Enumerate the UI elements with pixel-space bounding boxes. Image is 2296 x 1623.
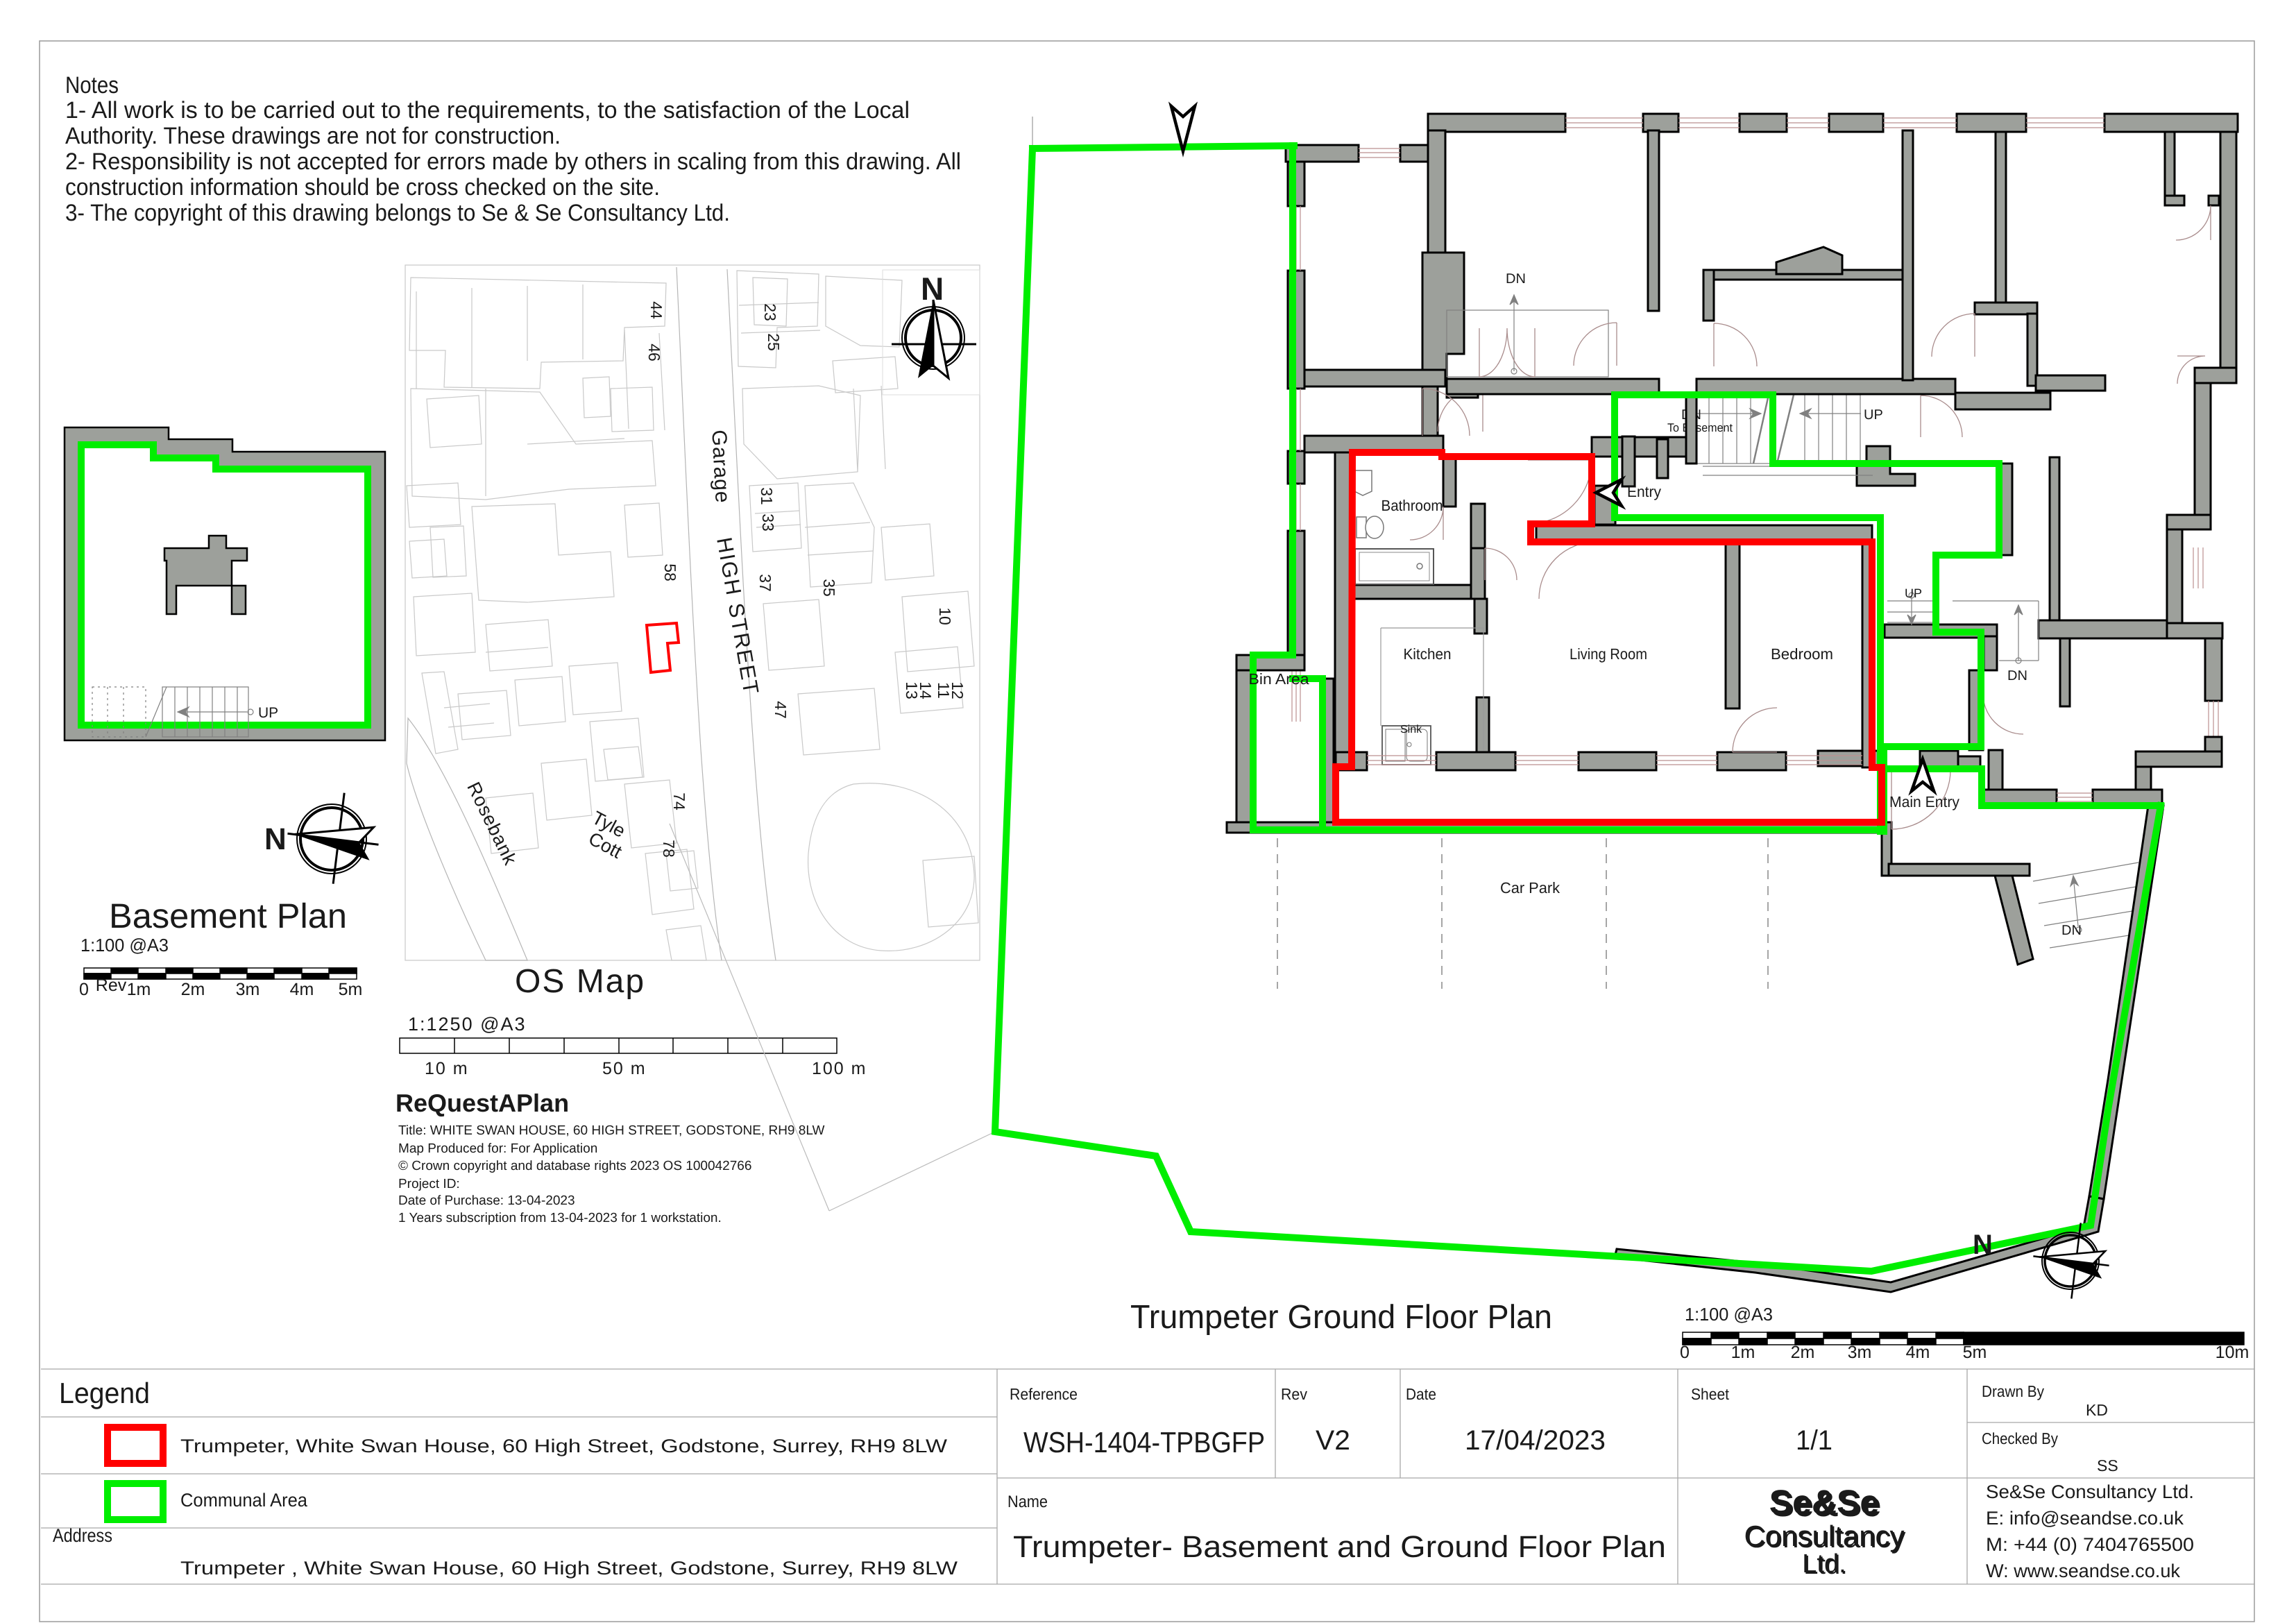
svg-text:1:100 @A3: 1:100 @A3: [80, 935, 169, 955]
svg-text:1 Years subscription from 13-0: 1 Years subscription from 13-04-2023 for…: [398, 1211, 722, 1225]
svg-text:0: 0: [1680, 1343, 1690, 1362]
svg-text:Ltd.: Ltd.: [1802, 1549, 1846, 1579]
svg-text:construction information shoul: construction information should be cross…: [65, 174, 660, 201]
svg-text:Trumpeter , White Swan House,: Trumpeter , White Swan House, 60 High St…: [180, 1558, 958, 1579]
svg-text:2- Responsibility is not accep: 2- Responsibility is not accepted for er…: [65, 148, 961, 175]
svg-text:1:1250 @A3: 1:1250 @A3: [408, 1014, 527, 1035]
svg-text:1- All work is to be carried o: 1- All work is to be carried out to the …: [65, 97, 910, 124]
svg-text:4m: 4m: [1906, 1343, 1930, 1362]
svg-text:WSH-1404-TPBGFP: WSH-1404-TPBGFP: [1023, 1426, 1265, 1459]
svg-text:31: 31: [758, 487, 776, 505]
svg-text:Communal Area: Communal Area: [180, 1490, 308, 1511]
svg-text:100 m: 100 m: [812, 1059, 867, 1078]
svg-text:Project ID:: Project ID:: [398, 1177, 460, 1191]
svg-text:14: 14: [917, 681, 935, 699]
svg-text:1:100 @A3: 1:100 @A3: [1685, 1304, 1773, 1325]
svg-text:KD: KD: [2086, 1401, 2108, 1419]
svg-text:74: 74: [670, 792, 688, 810]
svg-text:Consultancy: Consultancy: [1744, 1520, 1904, 1552]
svg-text:Rev: Rev: [1281, 1385, 1307, 1403]
svg-text:4m: 4m: [290, 980, 314, 999]
svg-text:Checked By: Checked By: [1982, 1429, 2058, 1447]
svg-text:1m: 1m: [127, 980, 151, 999]
svg-text:Basement Plan: Basement Plan: [109, 897, 347, 935]
svg-text:© Crown copyright and database: © Crown copyright and database rights 20…: [398, 1159, 751, 1173]
svg-text:0: 0: [79, 980, 89, 999]
svg-text:N: N: [1973, 1230, 1993, 1260]
svg-text:M: +44 (0) 7404765500: M: +44 (0) 7404765500: [1986, 1534, 2194, 1555]
svg-text:ReQuestAPlan: ReQuestAPlan: [396, 1089, 569, 1117]
svg-text:17/04/2023: 17/04/2023: [1465, 1425, 1606, 1456]
svg-text:UP: UP: [1864, 407, 1883, 423]
svg-text:Authority. These drawings are: Authority. These drawings are not for co…: [65, 123, 561, 149]
svg-text:Reference: Reference: [1010, 1385, 1078, 1403]
svg-text:Date: Date: [1406, 1385, 1436, 1403]
svg-text:Sheet: Sheet: [1691, 1385, 1730, 1403]
svg-text:2m: 2m: [1791, 1343, 1815, 1362]
svg-text:2m: 2m: [181, 980, 205, 999]
svg-text:25: 25: [765, 333, 783, 351]
svg-text:5m: 5m: [1963, 1343, 1987, 1362]
svg-text:44: 44: [647, 301, 665, 319]
svg-text:DN: DN: [2007, 668, 2027, 683]
svg-text:47: 47: [772, 701, 790, 719]
svg-text:Trumpeter Ground Floor Plan: Trumpeter Ground Floor Plan: [1130, 1299, 1552, 1336]
svg-text:Drawn By: Drawn By: [1982, 1382, 2044, 1400]
svg-text:Se&Se Consultancy Ltd.: Se&Se Consultancy Ltd.: [1986, 1481, 2194, 1502]
svg-text:10 m: 10 m: [425, 1059, 469, 1078]
svg-text:N: N: [921, 271, 944, 307]
svg-text:1/1: 1/1: [1796, 1425, 1832, 1456]
svg-text:Trumpeter- Basement and Ground: Trumpeter- Basement and Ground Floor Pla…: [1013, 1530, 1666, 1564]
svg-text:Car Park: Car Park: [1500, 879, 1561, 897]
svg-text:UP: UP: [1905, 586, 1922, 600]
svg-text:23: 23: [761, 303, 779, 321]
svg-text:46: 46: [645, 343, 663, 362]
svg-text:Main Entry: Main Entry: [1889, 793, 1959, 810]
svg-text:33: 33: [759, 513, 777, 532]
svg-text:Title: WHITE SWAN HOUSE, 60 HI: Title: WHITE SWAN HOUSE, 60 HIGH STREET,…: [398, 1123, 824, 1138]
svg-text:Map Produced for: For Applicat: Map Produced for: For Application: [398, 1141, 597, 1156]
svg-text:UP: UP: [258, 705, 278, 721]
svg-text:Kitchen: Kitchen: [1404, 645, 1452, 663]
svg-text:Legend: Legend: [59, 1377, 150, 1409]
svg-text:SS: SS: [2097, 1456, 2118, 1475]
svg-text:78: 78: [660, 840, 678, 858]
svg-text:W: www.seandse.co.uk: W: www.seandse.co.uk: [1986, 1561, 2180, 1581]
svg-text:Date of Purchase: 13-04-2023: Date of Purchase: 13-04-2023: [398, 1193, 575, 1208]
svg-text:Garage: Garage: [707, 430, 734, 504]
svg-text:E: info@seandse.co.uk: E: info@seandse.co.uk: [1986, 1508, 2184, 1529]
svg-text:35: 35: [820, 579, 838, 597]
svg-text:3m: 3m: [1848, 1343, 1872, 1362]
svg-text:DN: DN: [1506, 271, 1526, 287]
svg-text:12: 12: [949, 681, 967, 699]
svg-text:N: N: [264, 822, 287, 856]
svg-text:5m: 5m: [339, 980, 363, 999]
svg-text:Sink: Sink: [1400, 724, 1422, 736]
svg-text:58: 58: [661, 563, 679, 581]
svg-text:Trumpeter, White Swan House, 6: Trumpeter, White Swan House, 60 High Str…: [180, 1436, 948, 1456]
svg-text:OS Map: OS Map: [515, 963, 645, 1000]
svg-text:10m: 10m: [2216, 1343, 2250, 1362]
svg-text:Notes: Notes: [65, 72, 119, 99]
svg-text:1m: 1m: [1731, 1343, 1755, 1362]
svg-text:Bathroom: Bathroom: [1381, 497, 1443, 514]
svg-text:Bin Area: Bin Area: [1249, 670, 1310, 688]
svg-text:Bedroom: Bedroom: [1771, 645, 1833, 663]
svg-text:Rev: Rev: [96, 976, 127, 995]
svg-text:10: 10: [936, 607, 954, 625]
svg-text:Name: Name: [1007, 1493, 1048, 1511]
svg-text:37: 37: [756, 574, 774, 592]
svg-text:3m: 3m: [236, 980, 260, 999]
svg-text:Address: Address: [53, 1525, 112, 1546]
svg-text:3- The copyright of this drawi: 3- The copyright of this drawing belongs…: [65, 200, 730, 226]
svg-text:DN: DN: [2061, 923, 2082, 938]
svg-text:Living Room: Living Room: [1570, 645, 1647, 663]
svg-text:To Basement: To Basement: [1667, 421, 1733, 434]
svg-text:Se&Se: Se&Se: [1769, 1483, 1879, 1522]
svg-text:Entry: Entry: [1627, 483, 1661, 500]
svg-text:50 m: 50 m: [602, 1059, 647, 1078]
svg-text:V2: V2: [1316, 1425, 1350, 1456]
